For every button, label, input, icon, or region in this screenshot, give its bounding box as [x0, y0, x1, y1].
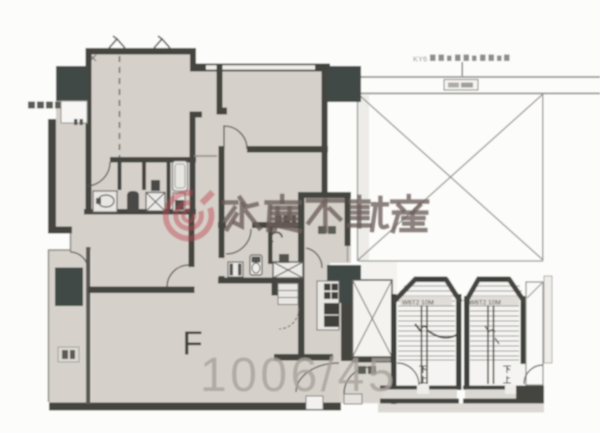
svg-text:W6T2 10M: W6T2 10M — [469, 300, 501, 307]
svg-text:W6T2 10M: W6T2 10M — [402, 300, 434, 307]
svg-text:KY6: KY6 — [413, 55, 427, 64]
svg-text:1006/45: 1006/45 — [200, 349, 398, 402]
